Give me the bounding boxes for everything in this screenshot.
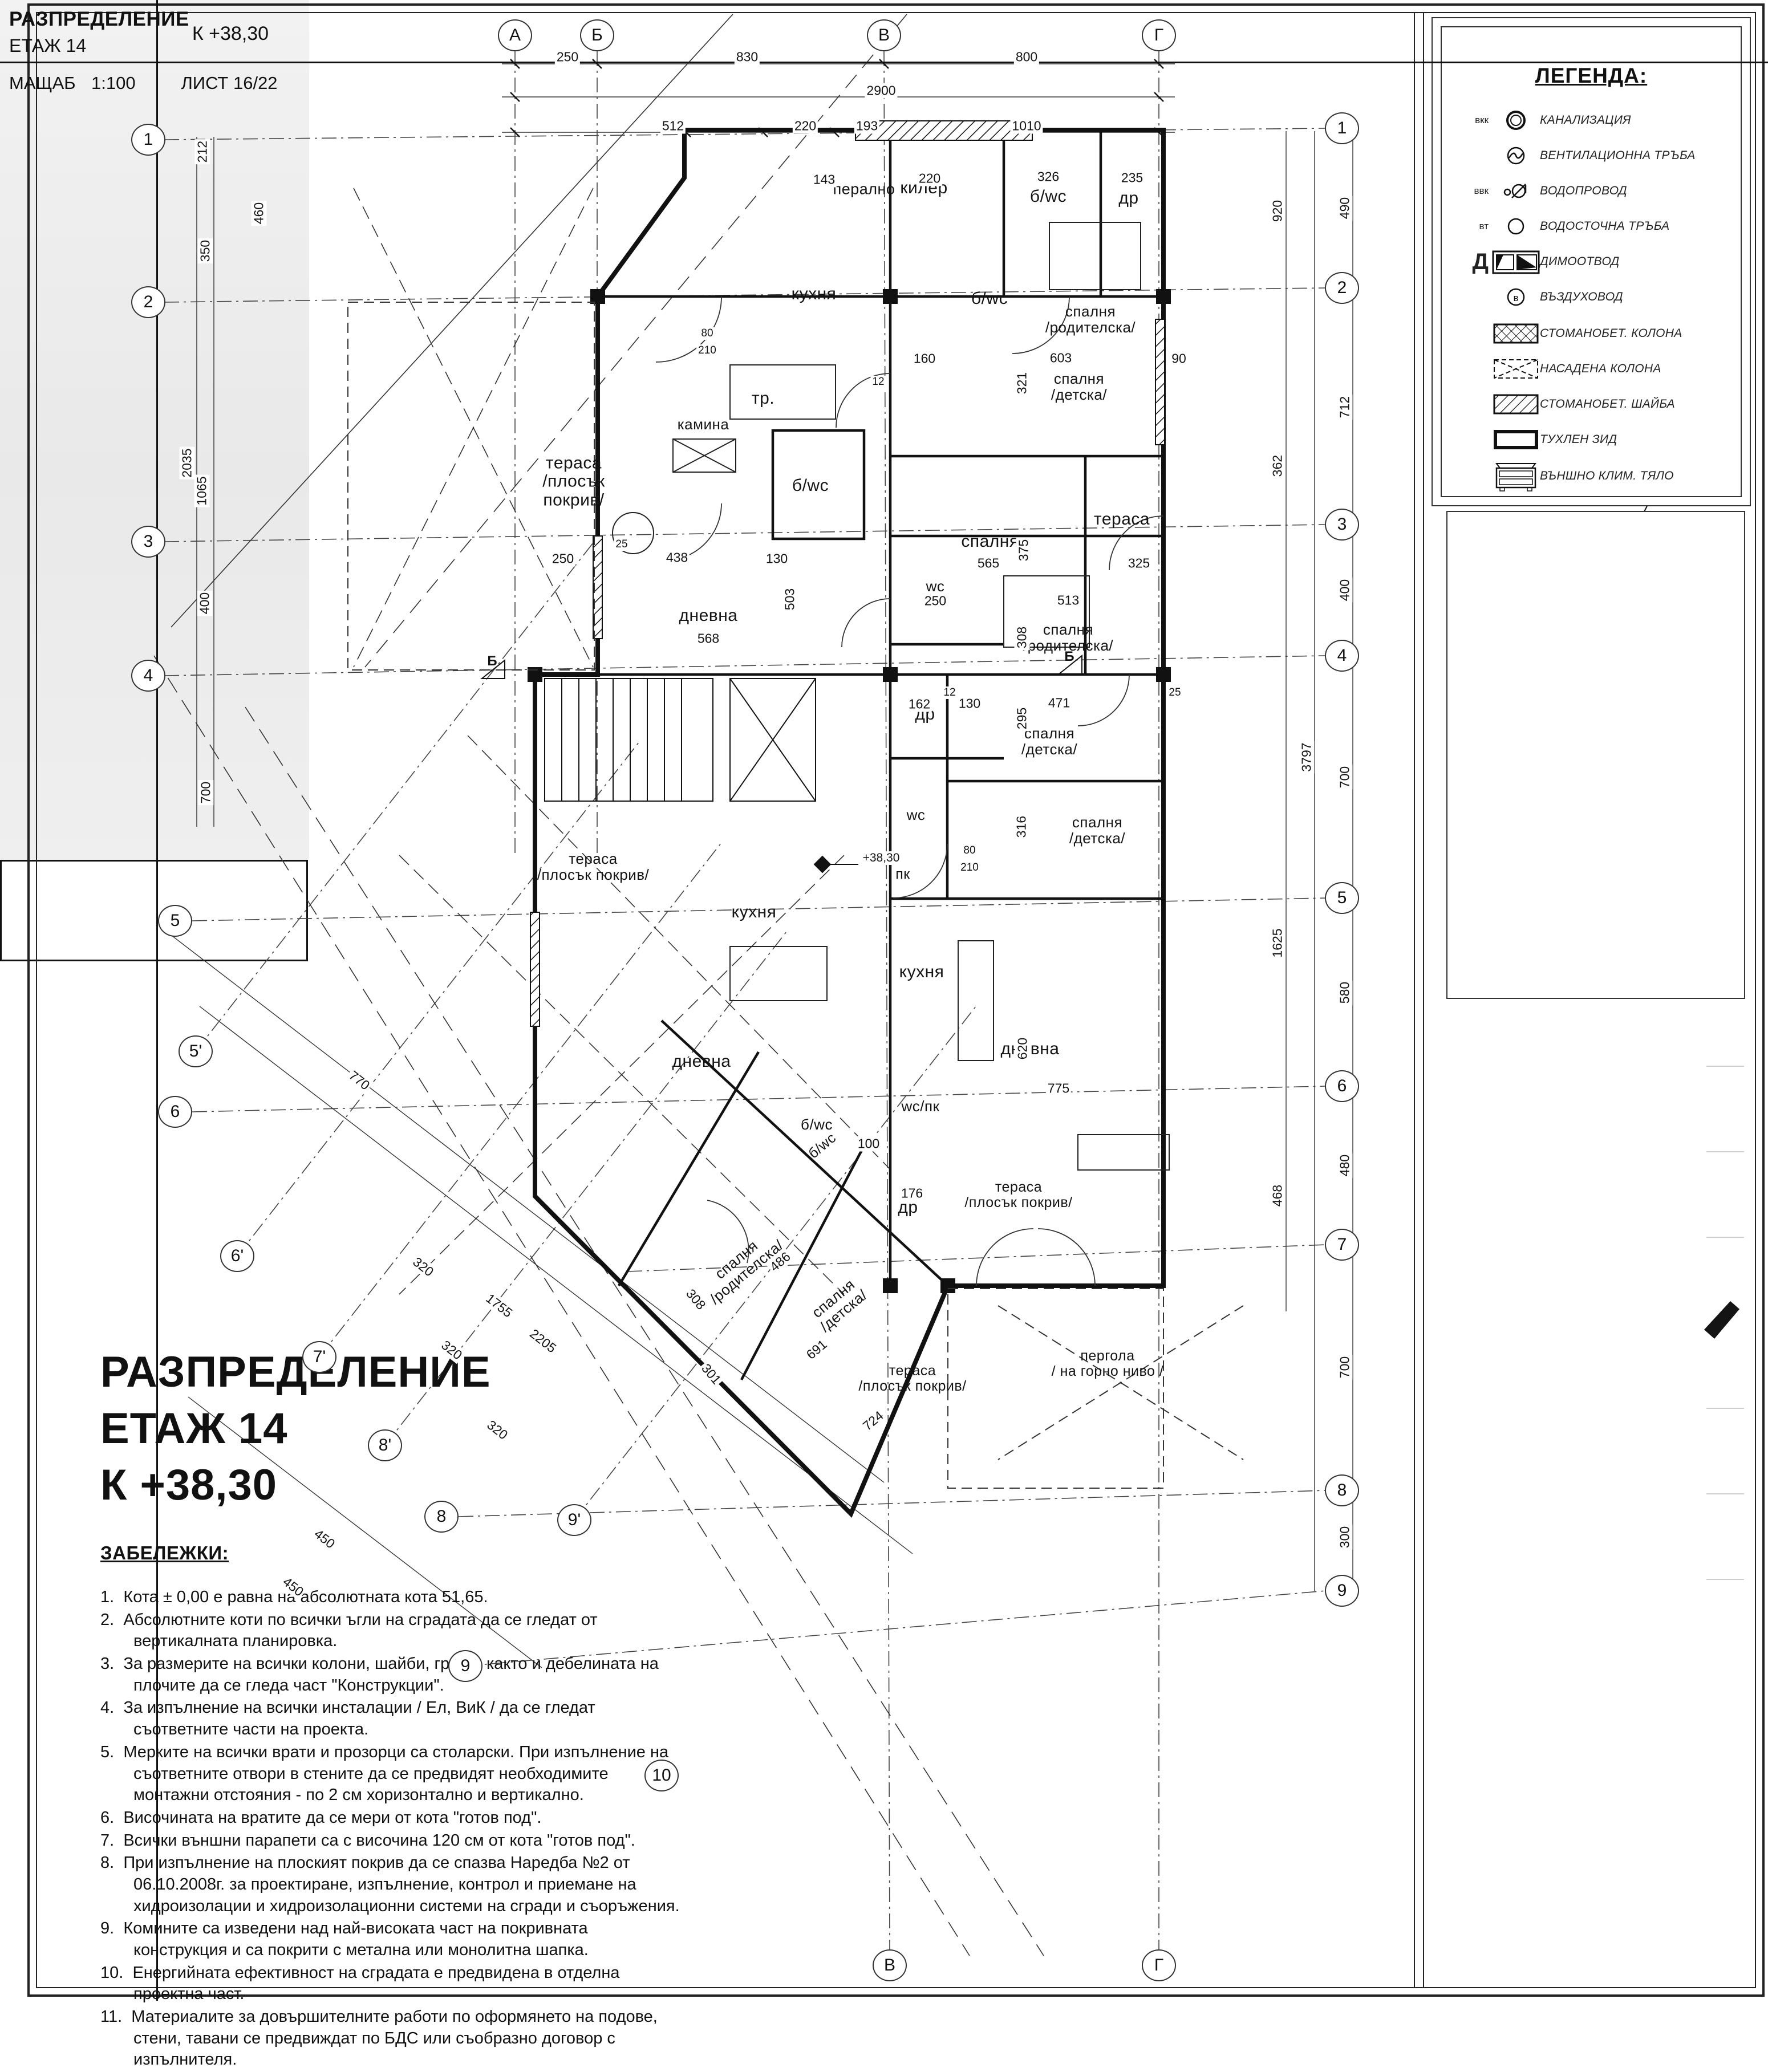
- dimension-label: 700: [1337, 765, 1353, 790]
- note-item: За размерите на всички колони, шайби, гр…: [100, 1653, 682, 1696]
- note-item: Всички външни парапети са с височина 120…: [100, 1830, 682, 1852]
- dimension-label: 775: [1046, 1081, 1071, 1096]
- dimension-label: 565: [976, 556, 1001, 571]
- dimension-label: 325: [1126, 556, 1151, 571]
- axis-bubble: 5: [158, 905, 192, 937]
- air-duct-icon: в: [1492, 285, 1540, 310]
- note-item: Енергийната ефективност на сградата е пр…: [100, 1963, 682, 2005]
- brick-wall-icon: [1492, 427, 1540, 452]
- svg-text:в: в: [1513, 292, 1518, 303]
- room-label: тераса /плосък покрив/: [964, 1180, 1072, 1210]
- dimension-label: 210: [696, 344, 718, 357]
- axis-bubble: 6: [1325, 1070, 1359, 1102]
- room-label: тераса: [1094, 510, 1150, 529]
- note-item: За изпълнение на всички инсталации / Ел,…: [100, 1697, 682, 1740]
- dimension-label: 12: [942, 686, 957, 699]
- axis-bubble: 2: [131, 286, 165, 318]
- title-line1: РАЗПРЕДЕЛЕНИЕ: [100, 1348, 491, 1396]
- ac-unit-icon: [1492, 460, 1540, 492]
- dimension-label: 143: [812, 172, 837, 188]
- dimension-label: 130: [764, 551, 789, 567]
- dimension-label: 130: [957, 696, 982, 712]
- dimension-label: 350: [198, 238, 213, 263]
- room-label: тераса /плосък покрив/: [542, 454, 605, 509]
- title-block-level: К +38,30: [163, 23, 298, 45]
- dimension-label: 160: [912, 351, 937, 367]
- notes-section: ЗАБЕЛЕЖКИ: Кота ± 0,00 е равна на абсолю…: [100, 1542, 682, 2072]
- dimension-label: 700: [198, 780, 214, 805]
- dimension-label: 712: [1337, 395, 1353, 420]
- dimension-label: 460: [252, 201, 267, 226]
- room-label: др: [1118, 189, 1138, 208]
- notes-title: ЗАБЕЛЕЖКИ:: [100, 1542, 682, 1564]
- dimension-label: 295: [1015, 706, 1030, 731]
- legend-item: СТОМАНОБЕТ. КОЛОНА: [1452, 319, 1730, 348]
- dimension-label: 700: [1337, 1355, 1353, 1380]
- axis-bubble: 10: [644, 1760, 679, 1791]
- dimension-label: 490: [1337, 196, 1353, 221]
- room-label: wc: [926, 578, 945, 594]
- dimension-label: 620: [1015, 1036, 1031, 1061]
- dimension-label: 212: [195, 139, 210, 164]
- dimension-label: 362: [1270, 453, 1286, 478]
- title-block-scale-label: МАЩАБ: [9, 73, 76, 94]
- drawing-title: РАЗПРЕДЕЛЕНИЕ ЕТАЖ 14 К +38,30: [100, 1344, 491, 1513]
- dimension-label: 162: [907, 697, 932, 712]
- dimension-label: 250: [550, 551, 575, 567]
- dimension-label: 193: [854, 119, 879, 134]
- dimension-label: 12: [870, 376, 886, 388]
- dimension-label: 920: [1270, 198, 1286, 224]
- legend-item: Д ДИМООТВОД: [1452, 247, 1730, 276]
- room-label: пк: [895, 867, 910, 883]
- dimension-label: 220: [917, 171, 942, 186]
- title-line2: ЕТАЖ 14: [100, 1404, 288, 1453]
- room-label: б/wc: [792, 477, 829, 495]
- dimension-label: 480: [1337, 1153, 1353, 1178]
- dimension-label: 400: [1337, 578, 1353, 603]
- dimension-label: 503: [782, 587, 798, 612]
- water-supply-icon: [1492, 178, 1540, 204]
- legend-item: НАСАДЕНА КОЛОНА: [1452, 355, 1730, 383]
- dimension-label: 1010: [1010, 119, 1043, 134]
- dimension-label: 603: [1048, 351, 1073, 366]
- dimension-label: 300: [1337, 1525, 1353, 1550]
- dimension-label: 308: [1015, 625, 1030, 650]
- axis-bubble: 8: [1325, 1474, 1359, 1506]
- room-label: кухня: [899, 963, 944, 981]
- dimension-label: 800: [1014, 50, 1039, 65]
- planted-column-icon: [1492, 356, 1540, 381]
- axis-bubble: 9: [1325, 1575, 1359, 1607]
- axis-bubble: 4: [131, 660, 165, 692]
- notes-list: Кота ± 0,00 е равна на абсолютната кота …: [100, 1587, 682, 2071]
- axis-bubble: 9: [448, 1650, 482, 1682]
- legend-item: ВЕНТИЛАЦИОННА ТРЪБА: [1452, 141, 1730, 170]
- dimension-label: 321: [1015, 371, 1030, 396]
- dimension-label: 830: [735, 50, 760, 65]
- section-mark-label: Б: [487, 653, 497, 669]
- dimension-label: 25: [614, 538, 629, 551]
- dimension-label: 250: [555, 50, 580, 65]
- dimension-label: 375: [1016, 538, 1032, 563]
- room-label: спалня /детска/: [1051, 371, 1107, 403]
- title-line3: К +38,30: [100, 1461, 277, 1509]
- downpipe-icon: [1492, 214, 1540, 239]
- dimension-label: 2900: [865, 83, 897, 99]
- axis-bubble: В: [873, 1949, 907, 1981]
- axis-bubble: В: [867, 19, 901, 51]
- dimension-label: 2035: [180, 446, 195, 479]
- axis-bubble: 9': [557, 1504, 591, 1536]
- axis-bubble: Б: [580, 19, 614, 51]
- dimension-label: 3797: [1299, 741, 1315, 773]
- dimension-label: 568: [696, 631, 721, 647]
- axis-bubble: 8: [424, 1501, 459, 1533]
- dimension-label: 1625: [1270, 927, 1286, 959]
- legend-item: в ВЪЗДУХОВОД: [1452, 283, 1730, 311]
- note-item: Мерките на всички врати и прозорци са ст…: [100, 1742, 682, 1806]
- room-label: спалня: [961, 533, 1019, 551]
- axis-bubble: 2: [1325, 272, 1359, 304]
- axis-bubble: 4: [1325, 640, 1359, 672]
- room-label: др: [898, 1198, 918, 1217]
- partial-logo-mark: [1704, 1301, 1739, 1339]
- dimension-label: 471: [1047, 696, 1072, 711]
- title-block-divider-horizontal: [0, 62, 1768, 63]
- note-item: Абсолютните коти по всички ъгли на сград…: [100, 1610, 682, 1652]
- dimension-label: 80: [962, 844, 977, 857]
- dimension-label: 250: [923, 594, 948, 609]
- sewer-icon: [1492, 108, 1540, 133]
- axis-bubble: 1: [1325, 112, 1359, 144]
- axis-bubble: А: [498, 19, 532, 51]
- dimension-label: 90: [1170, 351, 1188, 367]
- room-label: спалня /родителска/: [1045, 303, 1136, 335]
- level-mark-label: +38,30: [861, 851, 902, 865]
- room-label: дневна: [679, 607, 738, 625]
- dimension-label: 25: [1167, 686, 1182, 699]
- blueprint-sheet: { "main_title": {"line1": "РАЗПРЕДЕЛЕНИЕ…: [0, 0, 1768, 2001]
- title-block-sheet: ЛИСТ 16/22: [163, 73, 295, 94]
- legend-panel: ЛЕГЕНДА: вкк КАНАЛИЗАЦИЯ ВЕНТИЛАЦИОННА Т…: [1441, 26, 1742, 497]
- room-label: wc: [907, 807, 926, 823]
- axis-bubble: 7: [1325, 1229, 1359, 1261]
- dimension-label: 513: [1056, 593, 1081, 608]
- dimension-label: 210: [959, 862, 980, 874]
- axis-bubble: 3: [131, 526, 165, 558]
- dimension-label: 468: [1270, 1183, 1286, 1208]
- dimension-label: 580: [1337, 980, 1353, 1005]
- axis-bubble: 5: [1325, 882, 1359, 914]
- dimension-label: 326: [1036, 169, 1061, 185]
- dimension-label: 400: [197, 591, 213, 616]
- rc-column-icon: [1492, 321, 1540, 346]
- dimension-label: 80: [699, 327, 715, 340]
- dimension-label: 235: [1120, 170, 1145, 186]
- room-label: спалня /детска/: [1069, 814, 1125, 846]
- dimension-label: 438: [664, 550, 690, 566]
- note-item: При изпълнение на плоският покрив да се …: [100, 1852, 682, 1917]
- legend-item: СТОМАНОБЕТ. ШАЙБА: [1452, 390, 1730, 419]
- legend-item: вт ВОДОСТОЧНА ТРЪБА: [1452, 212, 1730, 241]
- room-label: тераса /плосък покрив/: [537, 851, 650, 883]
- room-label: тераса /плосък покрив/: [858, 1363, 966, 1394]
- legend-item: вкк КАНАЛИЗАЦИЯ: [1452, 106, 1730, 135]
- room-label: кухня: [732, 903, 777, 921]
- axis-bubble: 8': [368, 1429, 402, 1461]
- legend-item: ТУХЛЕН ЗИД: [1452, 425, 1730, 454]
- smoke-duct-icon: [1492, 248, 1540, 275]
- room-label: перално: [833, 181, 895, 197]
- room-label: б/wc: [971, 290, 1008, 308]
- dimension-label: 220: [793, 119, 818, 134]
- room-label: дневна: [672, 1053, 731, 1071]
- dimension-label: 176: [899, 1186, 924, 1201]
- room-label: б/wc: [1030, 188, 1067, 206]
- axis-bubble: 1: [131, 124, 165, 156]
- title-block-scale-value: 1:100: [91, 73, 136, 94]
- note-item: Комините са изведени над най-високата ча…: [100, 1918, 682, 1961]
- legend-item: ввк ВОДОПРОВОД: [1452, 177, 1730, 205]
- dimension-label: 1065: [194, 474, 210, 507]
- room-label: камина: [678, 416, 729, 432]
- room-label: wc/пк: [902, 1098, 940, 1114]
- rc-shear-wall-icon: [1492, 392, 1540, 417]
- axis-bubble: 6: [158, 1096, 192, 1128]
- title-block-name: РАЗПРЕДЕЛЕНИЕ: [9, 8, 189, 31]
- axis-bubble: 5': [179, 1035, 213, 1067]
- dimension-label: 512: [660, 119, 686, 134]
- axis-bubble: Г: [1142, 19, 1176, 51]
- empty-detail-panel: [1446, 511, 1745, 999]
- dimension-label: 316: [1014, 814, 1029, 839]
- room-label: тр.: [752, 389, 774, 408]
- room-label: спалня /детска/: [1021, 725, 1077, 757]
- axis-bubble: 3: [1325, 509, 1359, 541]
- room-label: кухня: [792, 285, 837, 303]
- axis-bubble: 7': [302, 1341, 336, 1373]
- axis-bubble: Г: [1142, 1949, 1176, 1981]
- axis-bubble: 6': [220, 1240, 254, 1272]
- dimension-label: 100: [856, 1136, 881, 1152]
- section-mark-label: Б: [1064, 649, 1074, 665]
- room-label: пергола / на горно ниво /: [1052, 1348, 1164, 1379]
- note-item: Материалите за довършителните работи по …: [100, 2006, 682, 2071]
- legend-item: ВЪНШНО КЛИМ. ТЯЛО: [1452, 462, 1730, 490]
- note-item: Височината на вратите да се мери от кота…: [100, 1807, 682, 1829]
- note-item: Кота ± 0,00 е равна на абсолютната кота …: [100, 1587, 682, 1608]
- title-block-floor: ЕТАЖ 14: [9, 35, 86, 56]
- vent-pipe-icon: [1492, 143, 1540, 168]
- legend-title: ЛЕГЕНДА:: [1535, 64, 1647, 88]
